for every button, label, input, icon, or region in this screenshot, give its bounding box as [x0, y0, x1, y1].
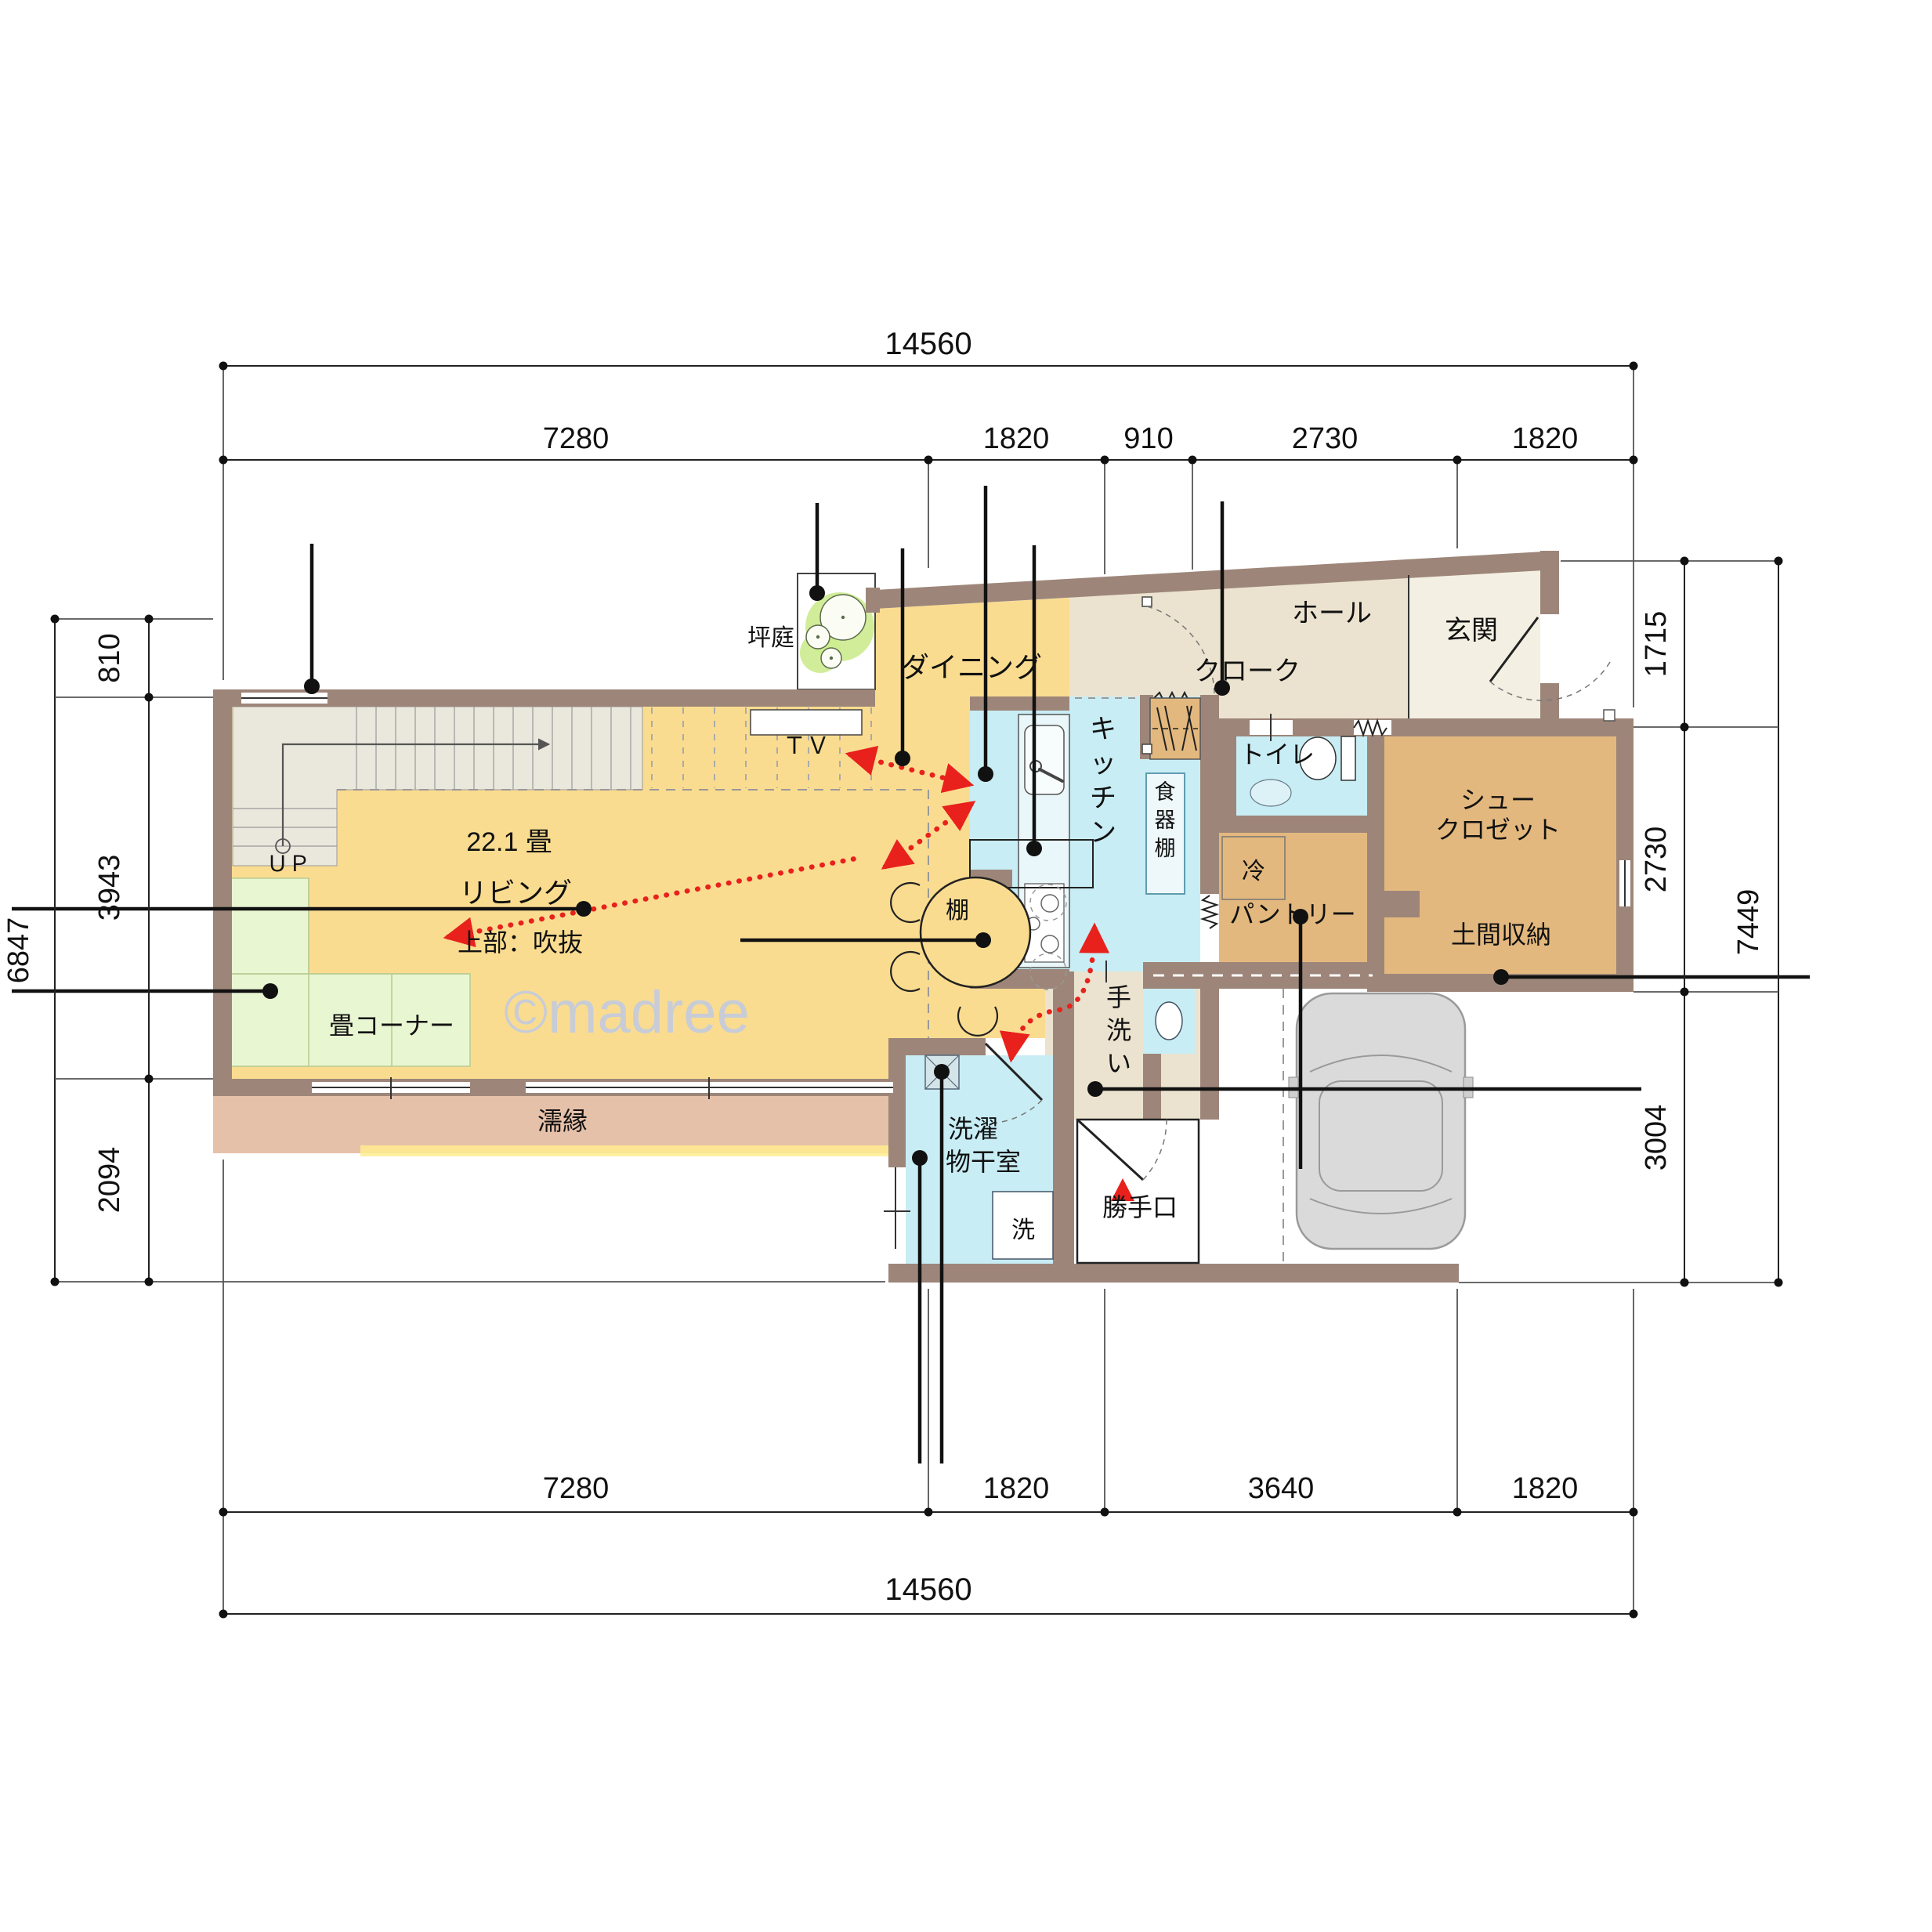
dim-value: 2730	[1640, 827, 1673, 893]
cupboard-label: 器	[1155, 809, 1176, 832]
dim-value: 1820	[1512, 422, 1579, 455]
dim-dot	[924, 1508, 933, 1517]
wall	[1384, 891, 1420, 917]
dim-dot	[1453, 1508, 1462, 1517]
back-door-porch	[1077, 1120, 1199, 1263]
dim-value: 3004	[1640, 1105, 1673, 1171]
wall	[888, 1038, 986, 1055]
leader-dot	[912, 1150, 928, 1166]
dim-value: 1820	[1512, 1472, 1579, 1505]
dim-value: 3640	[1248, 1472, 1315, 1505]
wall	[1219, 816, 1384, 833]
dim-dot	[1453, 456, 1462, 465]
dim-dot	[51, 615, 60, 624]
dim-value: 14560	[885, 327, 971, 361]
dim-dot	[219, 1508, 228, 1517]
cupboard-label: 食	[1155, 780, 1176, 804]
hand-wash-label: 洗	[1106, 1016, 1131, 1044]
wash-basin	[1156, 1002, 1182, 1040]
dim-value: 1715	[1640, 611, 1673, 678]
dining-table	[921, 877, 1030, 987]
floor-plan-svg: 1456072801820910273018208103943209468471…	[0, 0, 1932, 1932]
courtyard-label: 坪庭	[747, 625, 794, 651]
wall	[1143, 1054, 1161, 1120]
leader-dot	[895, 751, 910, 766]
dim-dot	[145, 1278, 154, 1286]
dim-dot	[1101, 456, 1109, 465]
cloak-label: クローク	[1194, 657, 1301, 686]
dim-dot	[145, 615, 154, 624]
wall	[1219, 736, 1236, 816]
leader-dot	[809, 585, 825, 601]
door-pivot	[1142, 744, 1152, 754]
toilet-rug	[1250, 780, 1291, 806]
hand-wash-label: 手	[1106, 983, 1131, 1011]
up-label: ＵＰ	[266, 852, 310, 876]
back-door-label: 勝手口	[1102, 1193, 1178, 1221]
leader-dot	[975, 932, 991, 948]
dim-dot	[219, 1610, 228, 1619]
wall	[1616, 718, 1634, 992]
tree-dot	[816, 635, 819, 639]
dim-dot	[145, 1075, 154, 1084]
dim-value: 6847	[2, 917, 35, 984]
wall	[1367, 718, 1384, 992]
dim-dot	[1775, 557, 1783, 566]
tree-dot	[841, 616, 845, 619]
kitchen-label: キ	[1090, 715, 1116, 744]
dim-value: 2094	[93, 1147, 126, 1214]
shoe-closet-label: シュー	[1460, 786, 1536, 814]
dining-label: ダイニング	[901, 651, 1042, 683]
dim-dot	[51, 1278, 60, 1286]
dim-dot	[1775, 1279, 1783, 1287]
pantry-label: パントリー	[1229, 900, 1356, 928]
shelf-label: 棚	[946, 898, 969, 924]
dim-dot	[1630, 1610, 1638, 1619]
wall	[1540, 551, 1559, 614]
wall	[1053, 971, 1074, 1265]
wall	[1200, 695, 1219, 894]
car-body	[1297, 993, 1465, 1249]
wall	[888, 1038, 906, 1167]
leader-dot	[304, 678, 320, 694]
leader-dot	[934, 1064, 950, 1080]
shoe-closet-label: クロゼット	[1435, 816, 1561, 844]
hand-wash-label: い	[1106, 1049, 1131, 1077]
living-label: リビング	[459, 877, 572, 909]
kitchen-label: ン	[1090, 818, 1116, 848]
laundry-label: 物干室	[946, 1148, 1021, 1176]
leader-dot	[1493, 969, 1509, 985]
fridge-label: 冷	[1242, 859, 1265, 885]
wall	[866, 588, 880, 613]
doma-label: 土間収納	[1451, 921, 1551, 949]
floor-plan-page: 1456072801820910273018208103943209468471…	[0, 0, 1932, 1932]
dim-dot	[1681, 557, 1689, 566]
dim-dot	[219, 362, 228, 371]
dim-dot	[1630, 1508, 1638, 1517]
washer-label: 洗	[1011, 1217, 1035, 1243]
dim-dot	[1630, 362, 1638, 371]
wall	[888, 1264, 1459, 1283]
tv-label: ＴＶ	[783, 733, 830, 759]
porch-pillar	[1604, 710, 1615, 721]
dim-value: 810	[93, 633, 126, 682]
hall-label: ホール	[1292, 599, 1372, 628]
dim-value: 7280	[543, 1472, 610, 1505]
dim-value: 1820	[983, 1472, 1050, 1505]
dim-value: 1820	[983, 422, 1050, 455]
dim-value: 2730	[1292, 422, 1359, 455]
cupboard-label: 棚	[1155, 837, 1176, 860]
dim-dot	[1681, 1279, 1689, 1287]
watermark: ©madree	[504, 979, 750, 1046]
veranda-label: 濡縁	[537, 1107, 588, 1135]
kitchen-sink	[1025, 725, 1064, 794]
laundry-label: 洗濯	[948, 1115, 998, 1143]
leader-dot	[978, 766, 993, 782]
dim-value: 14560	[885, 1572, 971, 1607]
dim-dot	[1101, 1508, 1109, 1517]
door-pivot	[1142, 597, 1152, 606]
tree-dot	[830, 657, 833, 660]
dim-dot	[924, 456, 933, 465]
dim-dot	[1189, 456, 1197, 465]
dim-dot	[1681, 723, 1689, 732]
tatami-label: 畳コーナー	[329, 1011, 454, 1040]
dim-dot	[219, 456, 228, 465]
dim-dot	[145, 693, 154, 702]
wall	[213, 689, 232, 1096]
curtain-zigzag	[1203, 895, 1217, 928]
dim-value: 7449	[1732, 889, 1765, 956]
tv-board	[751, 710, 862, 735]
living-note-label: 上部：吹抜	[458, 928, 583, 957]
toilet-label: トイレ	[1239, 740, 1315, 769]
leader-dot	[1026, 841, 1042, 856]
leader-dot	[1087, 1081, 1103, 1097]
dim-dot	[1681, 988, 1689, 997]
leader-dot	[576, 901, 592, 917]
living-size-label: 22.1 畳	[466, 827, 552, 857]
kitchen-label: ッ	[1090, 749, 1116, 779]
dim-value: 7280	[543, 422, 610, 455]
kitchen-label: チ	[1090, 783, 1116, 813]
wall	[1200, 989, 1219, 1120]
entrance-label: 玄関	[1445, 616, 1498, 646]
leader-dot	[262, 983, 278, 999]
dim-dot	[1630, 456, 1638, 465]
dim-value: 3943	[93, 855, 126, 921]
dim-value: 910	[1123, 422, 1173, 455]
toilet-tank	[1341, 736, 1355, 780]
veranda-glow	[360, 1145, 888, 1156]
